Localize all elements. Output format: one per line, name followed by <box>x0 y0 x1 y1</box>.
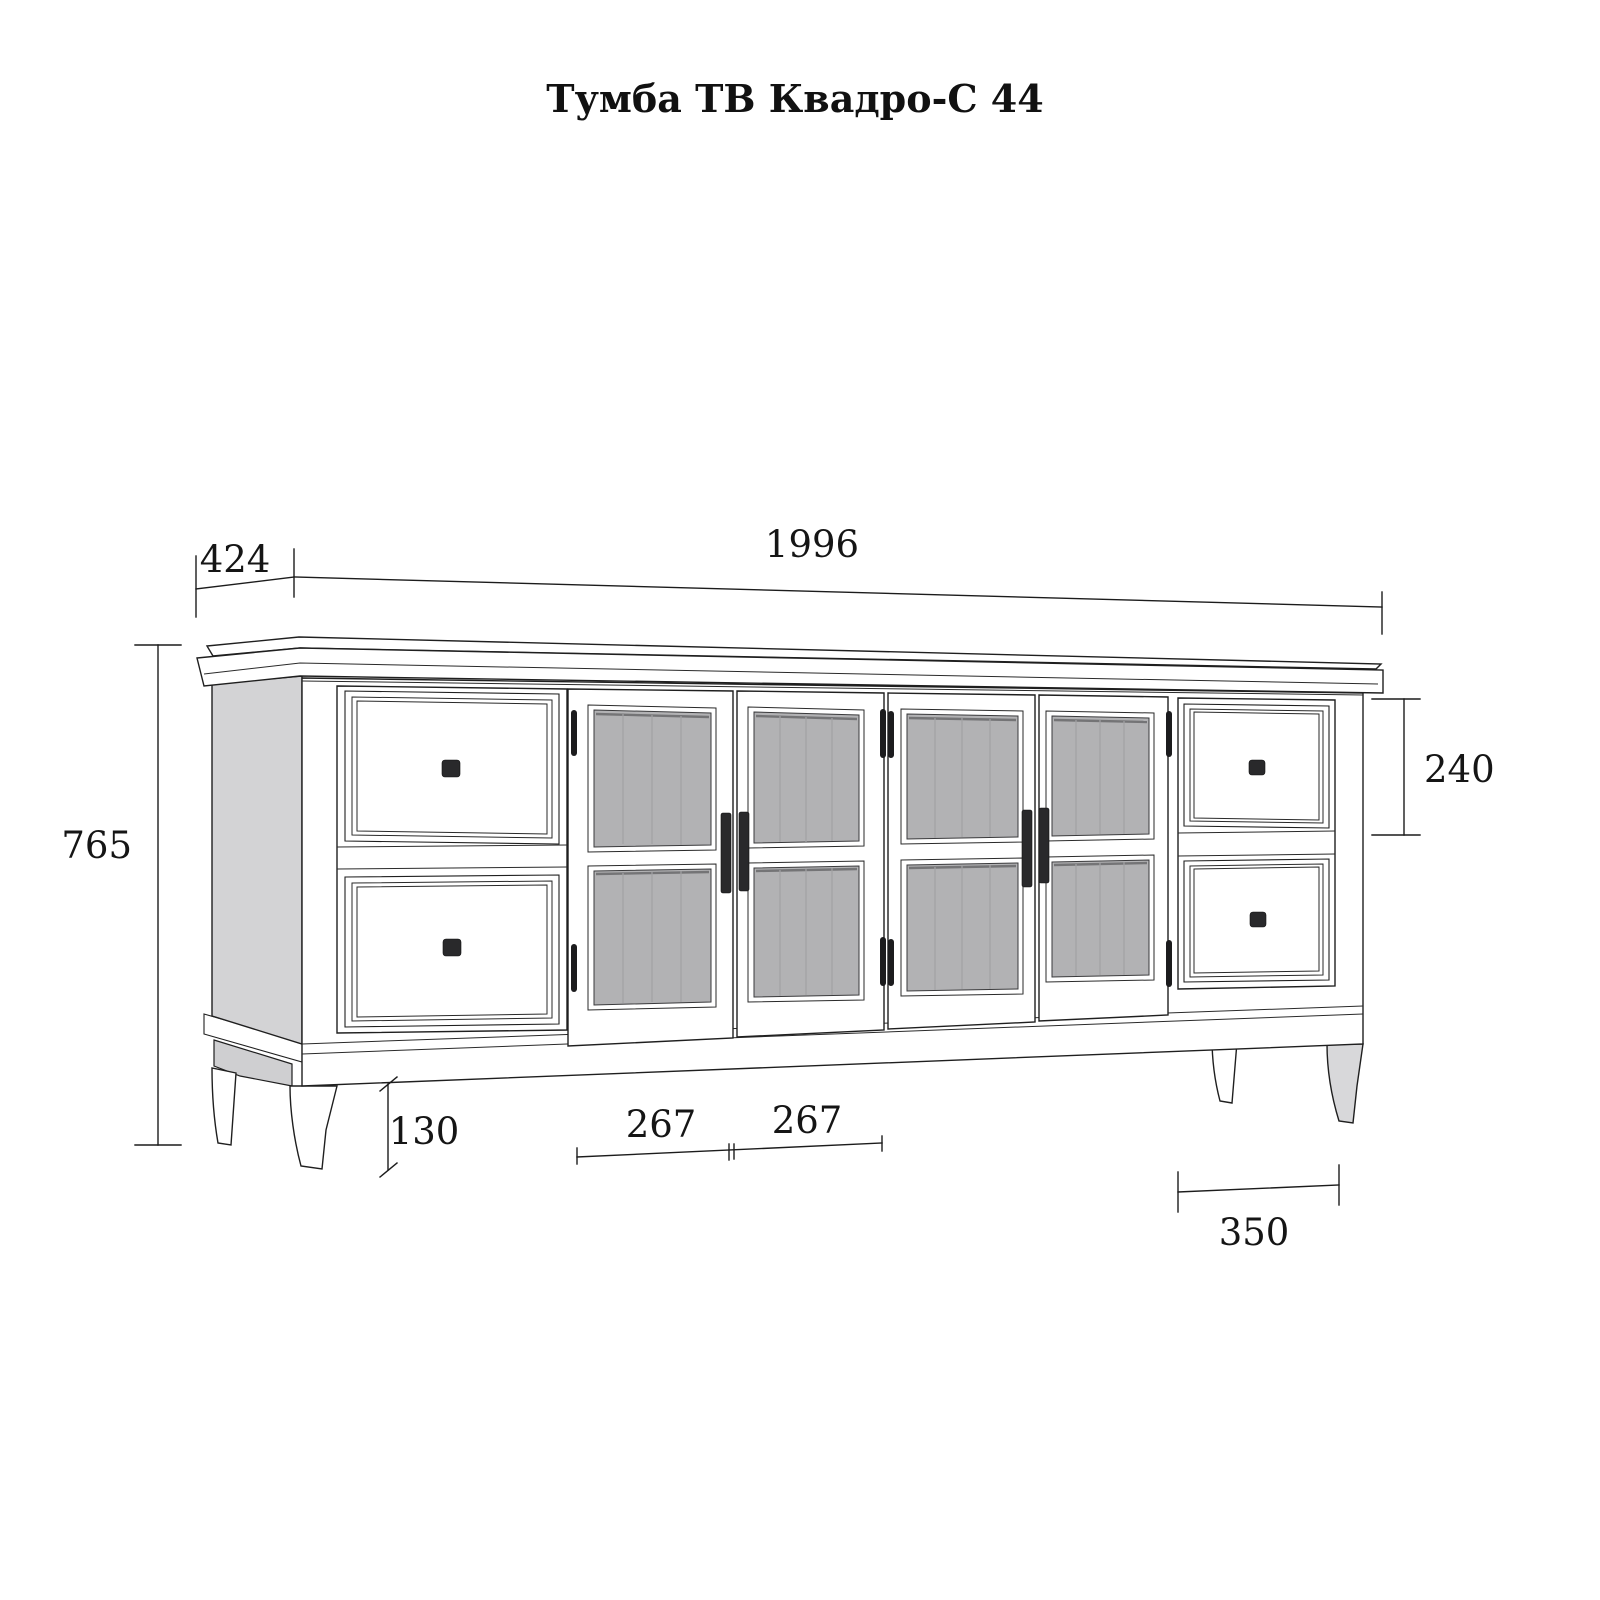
drawer-knob[interactable] <box>1249 760 1265 775</box>
dimension-height: 765 <box>61 645 181 1145</box>
front-right-leg <box>1327 1044 1363 1123</box>
dimension-drawer-width: 350 <box>1178 1165 1339 1254</box>
furniture-technical-drawing: Тумба ТВ Квадро-С 44 <box>0 0 1600 1600</box>
width-label: 1996 <box>765 523 859 566</box>
rear-left-leg <box>212 1068 236 1145</box>
door-handle[interactable] <box>1039 808 1049 883</box>
depth-label: 424 <box>200 538 271 581</box>
drawer-knob[interactable] <box>443 939 461 956</box>
hinge-icon <box>1166 940 1172 987</box>
dimension-width: 1996 <box>294 523 1382 634</box>
glass-door-3[interactable] <box>888 693 1035 1029</box>
door-width-left-label: 267 <box>626 1103 697 1146</box>
hinge-icon <box>571 710 577 756</box>
cabinet-body <box>197 637 1383 1169</box>
hinge-icon <box>1166 711 1172 757</box>
side-panel-left <box>212 676 302 1044</box>
dimension-leg-height: 130 <box>380 1077 459 1177</box>
door-width-right-label: 267 <box>772 1099 843 1142</box>
dimension-door-widths: 267 267 <box>577 1099 882 1164</box>
leg-height-label: 130 <box>389 1110 460 1153</box>
dimension-drawer-height: 240 <box>1372 699 1495 835</box>
door-handle[interactable] <box>721 813 731 893</box>
height-label: 765 <box>61 824 132 867</box>
front-left-leg <box>290 1086 337 1169</box>
hinge-icon <box>571 944 577 992</box>
drawer-knob[interactable] <box>442 760 460 777</box>
glass-door-1[interactable] <box>568 689 733 1046</box>
drawer-width-label: 350 <box>1219 1211 1290 1254</box>
drawer-knob[interactable] <box>1250 912 1266 927</box>
hinge-icon <box>880 937 886 986</box>
door-handle[interactable] <box>1022 810 1032 887</box>
drawer-height-label: 240 <box>1424 748 1495 791</box>
glass-door-2[interactable] <box>737 691 884 1037</box>
door-handle[interactable] <box>739 812 749 891</box>
glass-doors <box>568 689 1172 1046</box>
glass-door-4[interactable] <box>1039 695 1168 1021</box>
drawing-title: Тумба ТВ Квадро-С 44 <box>546 76 1043 121</box>
dimension-depth: 424 <box>196 538 294 617</box>
hinge-icon <box>888 939 894 986</box>
hinge-icon <box>888 711 894 758</box>
hinge-icon <box>880 709 886 758</box>
